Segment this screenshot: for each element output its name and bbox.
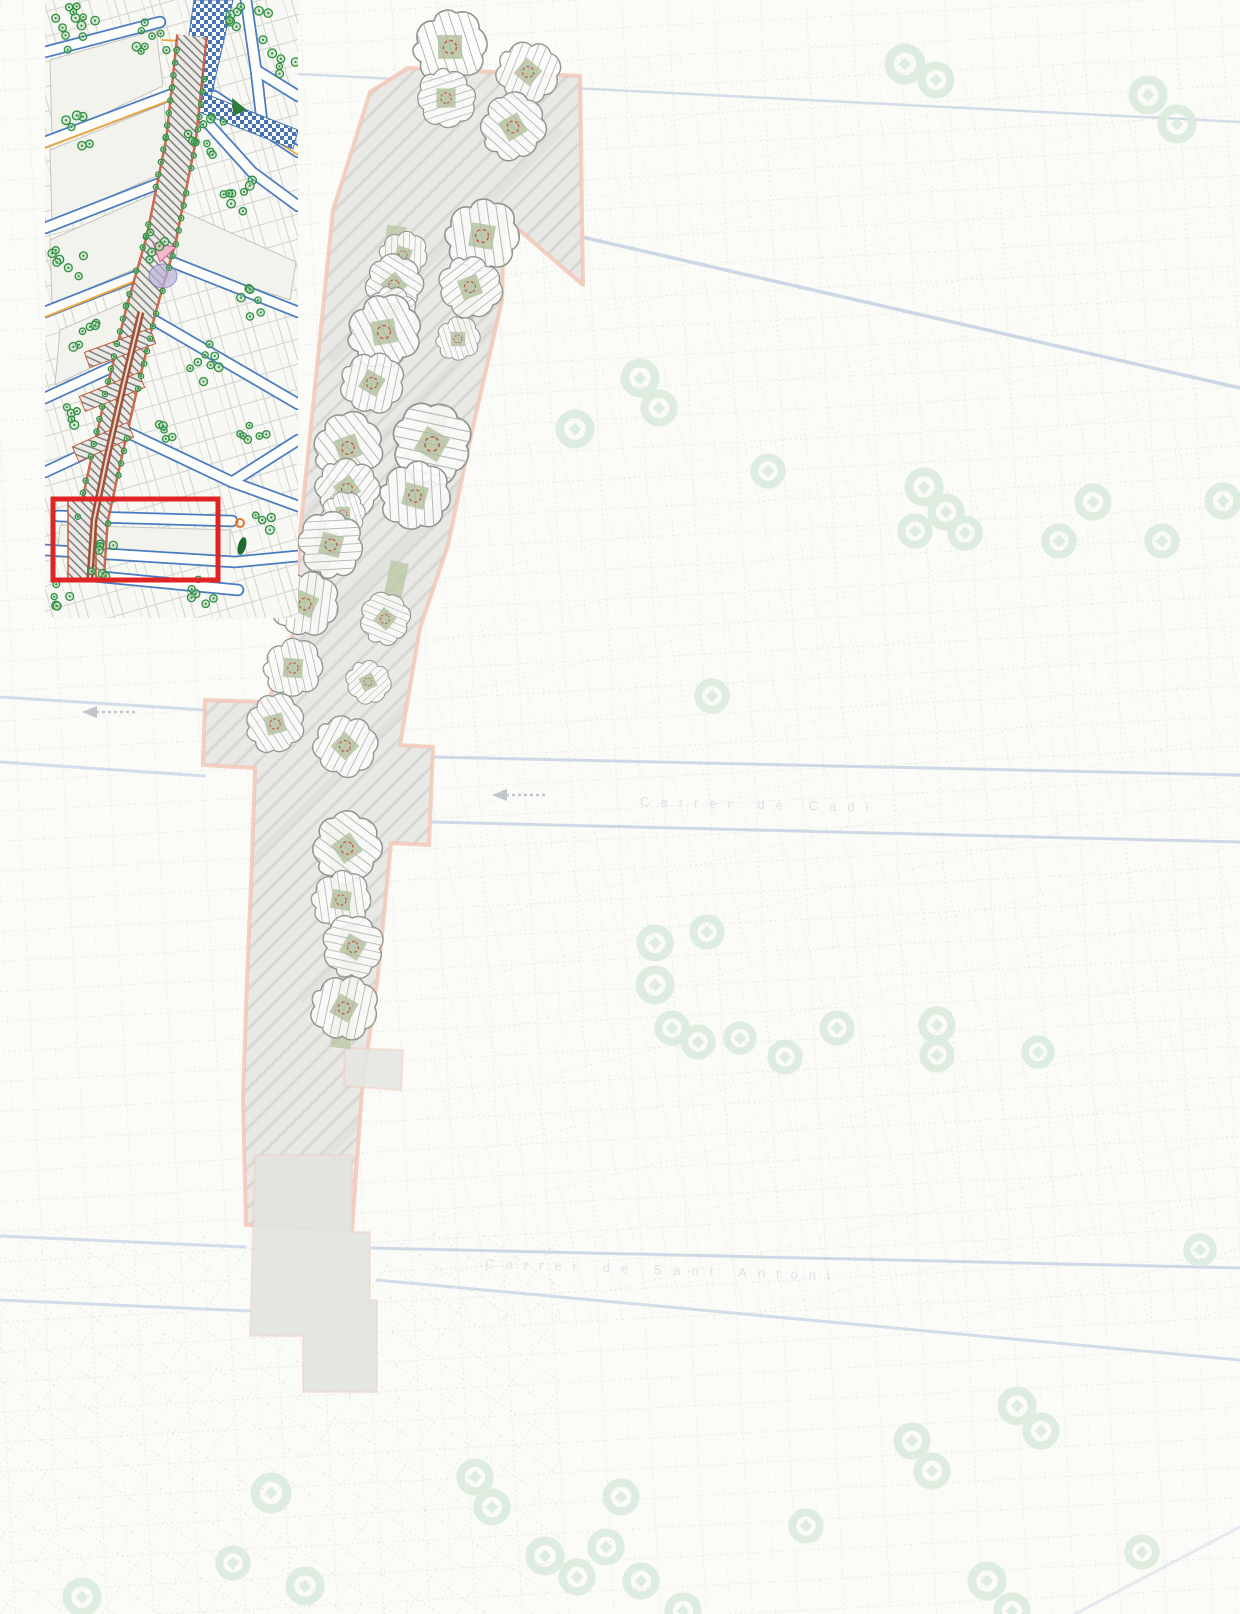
- corridor-side-block: [344, 1048, 403, 1090]
- inset-purple-area: [149, 264, 177, 288]
- overview-inset-map: [45, 0, 300, 618]
- parcel-texture-se: [430, 820, 1240, 1320]
- plan-canvas: Carrer de Cadí Carrer de Sant Antoni: [0, 0, 1240, 1614]
